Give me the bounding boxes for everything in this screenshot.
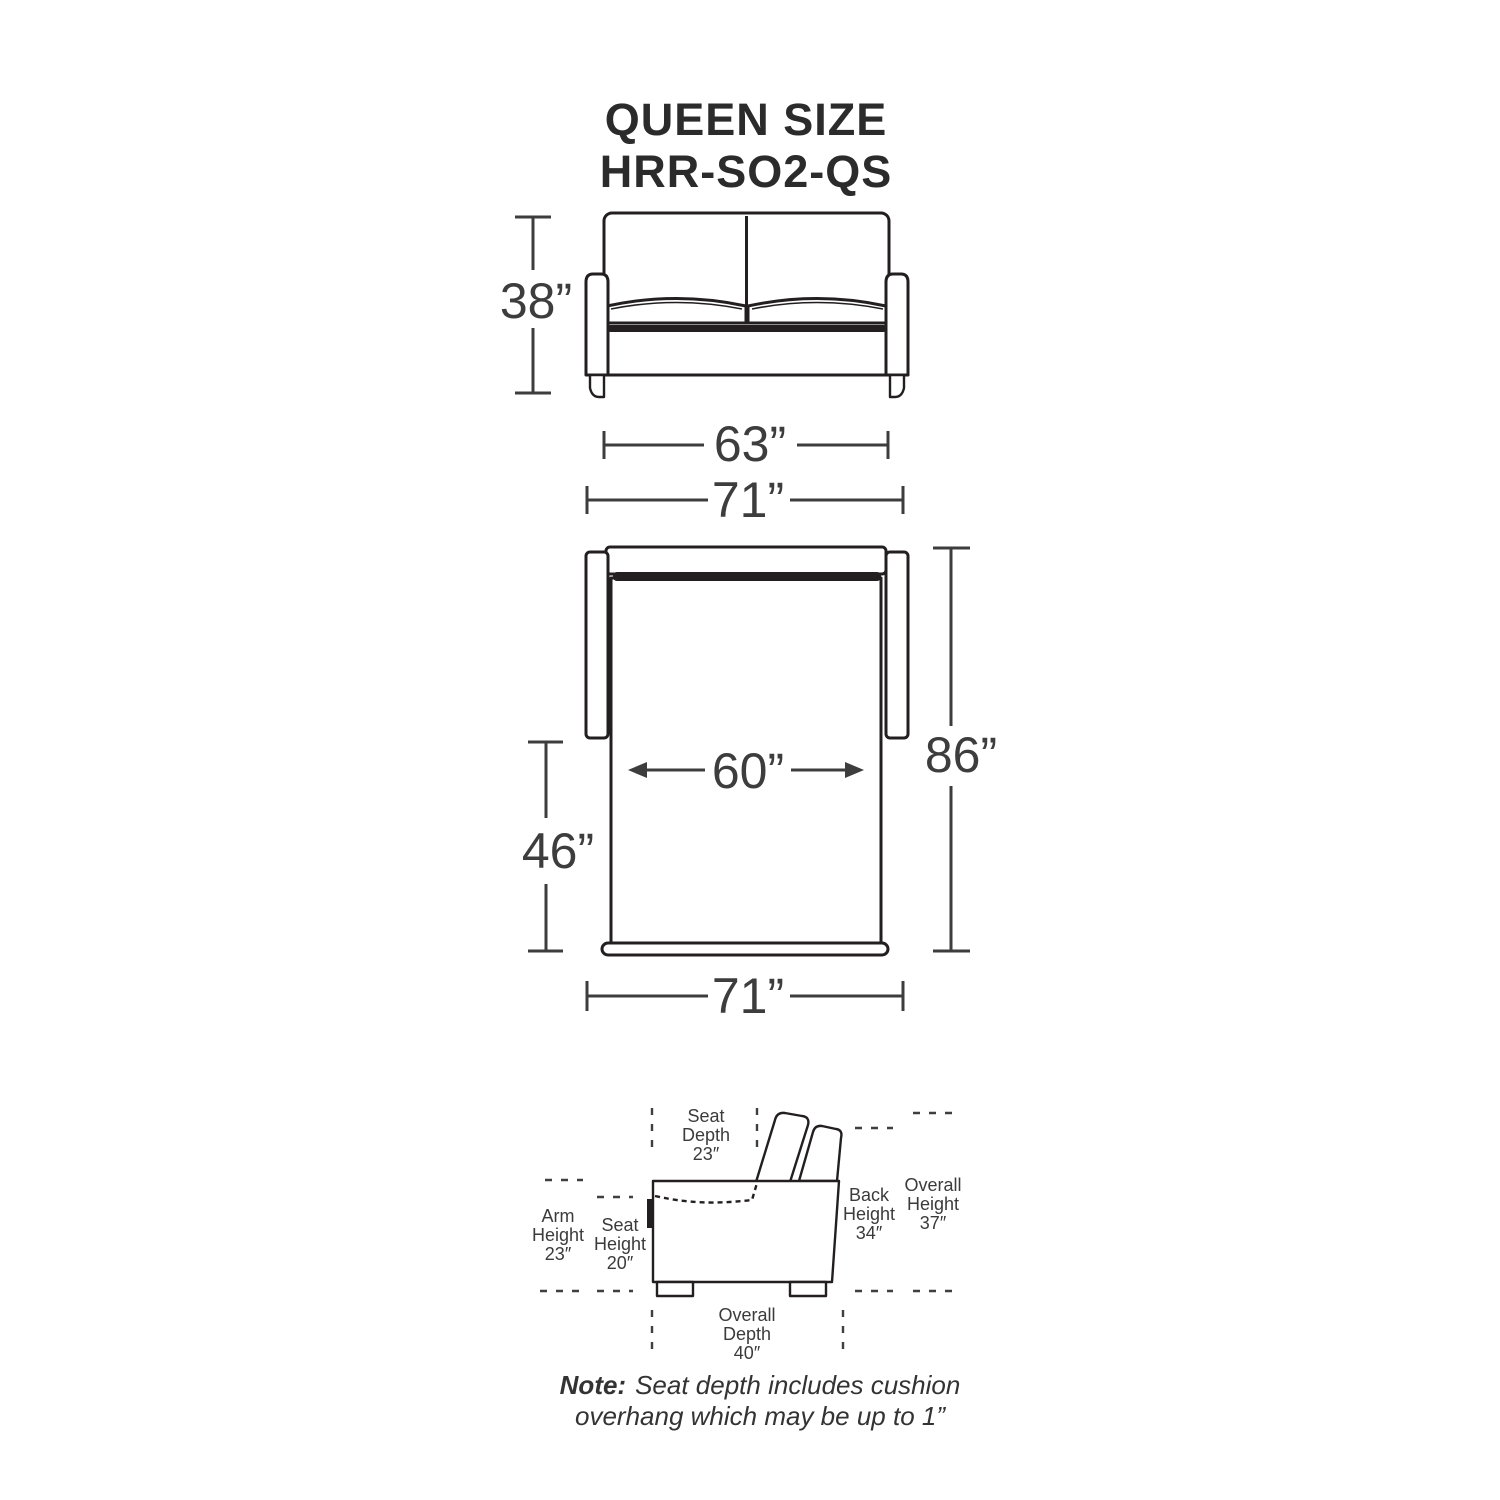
dim-value-mattress-width: 60” bbox=[712, 743, 784, 799]
front-arm-right bbox=[886, 274, 908, 375]
label-seat-depth: Seat Depth 23″ bbox=[682, 1106, 730, 1164]
label-back-height: Back Height 34″ bbox=[843, 1185, 895, 1243]
side-body bbox=[653, 1181, 839, 1282]
label-overall-depth: Overall Depth 40″ bbox=[718, 1305, 775, 1363]
label-line: Overall bbox=[718, 1305, 775, 1325]
label-line: 37″ bbox=[920, 1213, 947, 1233]
dim-value-top-overall-width: 71” bbox=[712, 472, 784, 528]
label-line: Seat bbox=[601, 1215, 638, 1235]
side-leg-front bbox=[657, 1282, 693, 1296]
front-view bbox=[586, 213, 908, 397]
label-line: Depth bbox=[723, 1324, 771, 1344]
dim-value-bottom-overall-width: 71” bbox=[712, 968, 784, 1024]
front-leg-left bbox=[590, 375, 604, 397]
dim-value-bed-extension: 46” bbox=[522, 823, 594, 879]
top-foot-bar bbox=[602, 943, 888, 955]
sofa-dimension-diagram: 38” 63” 71” 60” bbox=[0, 0, 1500, 1500]
side-leg-back bbox=[790, 1282, 826, 1296]
dimension-front-height: 38” bbox=[500, 217, 572, 393]
dimension-diagram-page: QUEEN SIZE HRR-SO2-QS 38” bbox=[0, 0, 1500, 1500]
label-line: Arm bbox=[542, 1206, 575, 1226]
label-line: Back bbox=[849, 1185, 890, 1205]
note-text-1: Seat depth includes cushion bbox=[635, 1370, 960, 1400]
dimension-bed-extension: 46” bbox=[522, 742, 594, 951]
label-line: 20″ bbox=[607, 1253, 634, 1273]
front-arm-left bbox=[586, 274, 608, 375]
label-line: Height bbox=[532, 1225, 584, 1245]
label-arm-height: Arm Height 23″ bbox=[532, 1206, 584, 1264]
label-seat-height: Seat Height 20″ bbox=[594, 1215, 646, 1273]
label-line: Depth bbox=[682, 1125, 730, 1145]
note-prefix: Note: bbox=[560, 1370, 626, 1400]
note: Note:Seat depth includes cushion overhan… bbox=[460, 1370, 1060, 1432]
note-line-1: Note:Seat depth includes cushion bbox=[460, 1370, 1060, 1401]
front-leg-right bbox=[890, 375, 904, 397]
front-seat-rail bbox=[607, 325, 887, 332]
top-arm-right bbox=[886, 552, 908, 738]
dim-value-overall-open-depth: 86” bbox=[925, 727, 997, 783]
label-line: 23″ bbox=[693, 1144, 720, 1164]
note-text-2: overhang which may be up to 1” bbox=[460, 1401, 1060, 1432]
dimension-top-overall-width: 71” bbox=[587, 472, 903, 528]
side-view bbox=[647, 1113, 841, 1296]
label-line: Height bbox=[843, 1204, 895, 1224]
top-backrest-bar bbox=[606, 547, 886, 574]
side-arm-tab bbox=[647, 1199, 654, 1228]
label-line: 34″ bbox=[856, 1223, 883, 1243]
label-line: Height bbox=[907, 1194, 959, 1214]
dimension-bottom-overall-width: 71” bbox=[587, 968, 903, 1024]
top-arm-left bbox=[586, 552, 608, 738]
dim-value-front-width: 63” bbox=[714, 416, 786, 472]
dimension-overall-open-depth: 86” bbox=[925, 548, 997, 951]
dim-value-front-height: 38” bbox=[500, 273, 572, 329]
label-line: Seat bbox=[687, 1106, 724, 1126]
top-mattress-head-bar bbox=[613, 572, 881, 581]
dimension-front-width: 63” bbox=[604, 416, 888, 472]
label-overall-height: Overall Height 37″ bbox=[904, 1175, 961, 1233]
label-line: Height bbox=[594, 1234, 646, 1254]
label-line: 40″ bbox=[734, 1343, 761, 1363]
label-line: Overall bbox=[904, 1175, 961, 1195]
label-line: 23″ bbox=[545, 1244, 572, 1264]
